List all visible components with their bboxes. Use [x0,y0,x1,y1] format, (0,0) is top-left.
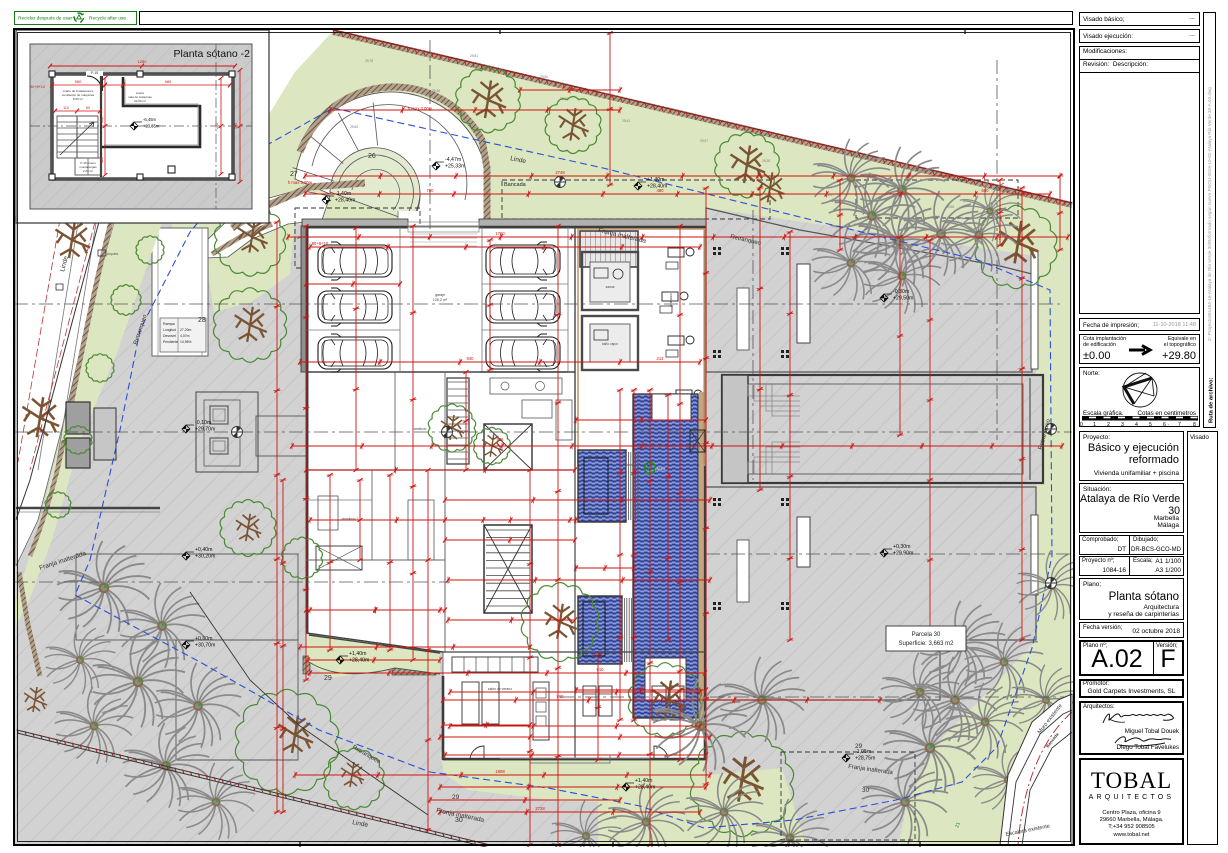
svg-text:+23,35m: +23,35m [143,124,160,129]
svg-text:90+5+10: 90+5+10 [30,85,45,89]
svg-text:275: 275 [215,123,219,129]
svg-text:29,41: 29,41 [622,119,630,123]
svg-text:h max 3,00m: h max 3,00m [288,180,313,185]
svg-text:29,75: 29,75 [365,59,373,63]
svg-text:+1,40m: +1,40m [349,651,366,657]
svg-text:22,60 m²: 22,60 m² [134,99,146,103]
svg-text:213: 213 [657,356,665,361]
svg-text:Rampa: Rampa [163,322,175,326]
svg-text:29,28: 29,28 [762,159,770,163]
svg-text:-1,40m: -1,40m [335,191,351,197]
svg-text:garaje: garaje [435,293,445,297]
svg-text:916: 916 [497,437,505,442]
svg-text:+28,40m: +28,40m [647,184,667,190]
svg-text:+29,90m: +29,90m [893,551,913,557]
svg-text:+29,50m: +29,50m [893,296,913,302]
svg-text:piscina: piscina [655,467,665,471]
svg-text:-6,45m: -6,45m [143,117,157,122]
svg-text:1808: 1808 [495,769,505,774]
svg-text:4,07m: 4,07m [180,334,190,338]
svg-text:+30,20m: +30,20m [195,554,215,560]
svg-text:Longitud: Longitud [163,328,176,332]
svg-text:Desnivel: Desnivel [163,334,176,338]
svg-text:vestíbulo: vestíbulo [414,427,427,431]
svg-text:Recycle after use: Recycle after use [89,16,126,22]
svg-text:2728: 2728 [535,806,545,811]
svg-text:940: 940 [467,356,475,361]
svg-text:-4,47m: -4,47m [445,157,461,163]
svg-text:+1,40m: +1,40m [635,778,652,784]
svg-text:h max 3,00m: h max 3,00m [408,106,433,111]
svg-text:985: 985 [165,79,172,84]
svg-text:+28,75m: +28,75m [855,756,875,762]
svg-text:29,81: 29,81 [470,54,478,58]
svg-text:+25,33m: +25,33m [445,164,465,170]
svg-text:Pendiente: Pendiente [163,340,178,344]
svg-text:+30,70m: +30,70m [195,643,215,649]
svg-text:+1,40m: +1,40m [647,177,664,183]
svg-text:29,12: 29,12 [560,97,568,101]
svg-text:Z:-Proyectos�814�84-16-Atalay: Z:-Proyectos�814�84-16-Atalaya de Río V… [1207,87,1212,341]
svg-text:Arqueta: Arqueta [107,252,118,256]
svg-text:960: 960 [557,694,565,699]
svg-text:Parcela 30: Parcela 30 [912,632,941,638]
svg-text:26: 26 [368,153,376,160]
svg-text:gimnasio: gimnasio [669,293,673,307]
svg-text:29,47: 29,47 [826,193,834,197]
svg-text:60: 60 [86,106,90,110]
svg-text:650: 650 [982,188,990,193]
svg-text:Reciclar después de usar: Reciclar después de usar [18,16,73,22]
svg-text:dormitorio 2: dormitorio 2 [342,517,359,521]
svg-text:29,68: 29,68 [946,205,954,209]
svg-text:+0,80m: +0,80m [195,636,212,642]
svg-text:29,58: 29,58 [880,179,888,183]
svg-text:29,07: 29,07 [700,139,708,143]
svg-text:2,20 m²: 2,20 m² [83,169,93,173]
svg-text:+29,70m: +29,70m [195,427,215,433]
svg-text:baño vapor: baño vapor [602,342,619,346]
svg-text:+0,30m: +0,30m [893,544,910,550]
svg-text:8,05 m²: 8,05 m² [73,97,83,101]
svg-text:960: 960 [75,79,82,84]
svg-text:28: 28 [198,317,206,324]
svg-text:126,2 m²: 126,2 m² [433,298,448,302]
svg-text:29: 29 [855,743,863,750]
svg-text:29: 29 [452,794,460,801]
svg-text:1280: 1280 [138,59,148,64]
svg-text:110: 110 [100,157,104,163]
svg-text:Ruta de archivo:: Ruta de archivo: [1209,378,1215,423]
svg-text:P-15: P-15 [91,71,98,75]
svg-text:14,96%: 14,96% [180,340,192,344]
svg-text:29: 29 [324,675,332,682]
svg-text:30: 30 [862,787,870,794]
svg-text:+28,40m: +28,40m [635,785,655,791]
svg-text:+0,40m: +0,40m [195,547,212,553]
svg-text:90+5+10: 90+5+10 [312,241,329,246]
svg-text:-0,30m: -0,30m [893,289,909,295]
svg-text:27: 27 [290,171,298,178]
svg-text:sauna: sauna [606,285,615,289]
svg-text:+28,40m: +28,40m [349,658,369,664]
svg-text:Superficie: 3,663 m2: Superficie: 3,663 m2 [898,641,954,647]
svg-text:-0,10m: -0,10m [195,420,211,426]
svg-text:700: 700 [427,188,435,193]
svg-text:Planta sótano -2: Planta sótano -2 [174,48,251,60]
svg-text:395: 395 [234,123,238,129]
svg-text:29,60: 29,60 [350,125,358,129]
svg-text:Bancada: Bancada [504,182,527,188]
svg-text:168: 168 [100,117,104,123]
svg-text:2748: 2748 [555,170,565,175]
svg-text:29,90: 29,90 [540,75,548,79]
svg-text:+28,40m: +28,40m [335,198,355,204]
svg-text:910: 910 [597,667,605,672]
svg-text:salón de verano: salón de verano [488,687,512,691]
svg-text:110: 110 [63,106,69,110]
svg-text:27,20m: 27,20m [180,328,191,332]
svg-text:1760: 1760 [495,231,505,236]
svg-text:29,26: 29,26 [432,89,440,93]
